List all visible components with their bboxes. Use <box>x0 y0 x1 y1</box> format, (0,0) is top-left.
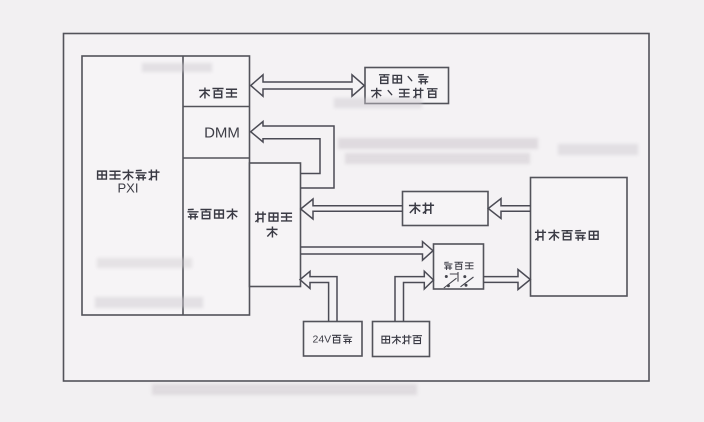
svg-text:PXI: PXI <box>118 181 139 196</box>
svg-text:24V: 24V <box>313 334 332 346</box>
svg-text:DMM: DMM <box>204 125 240 142</box>
